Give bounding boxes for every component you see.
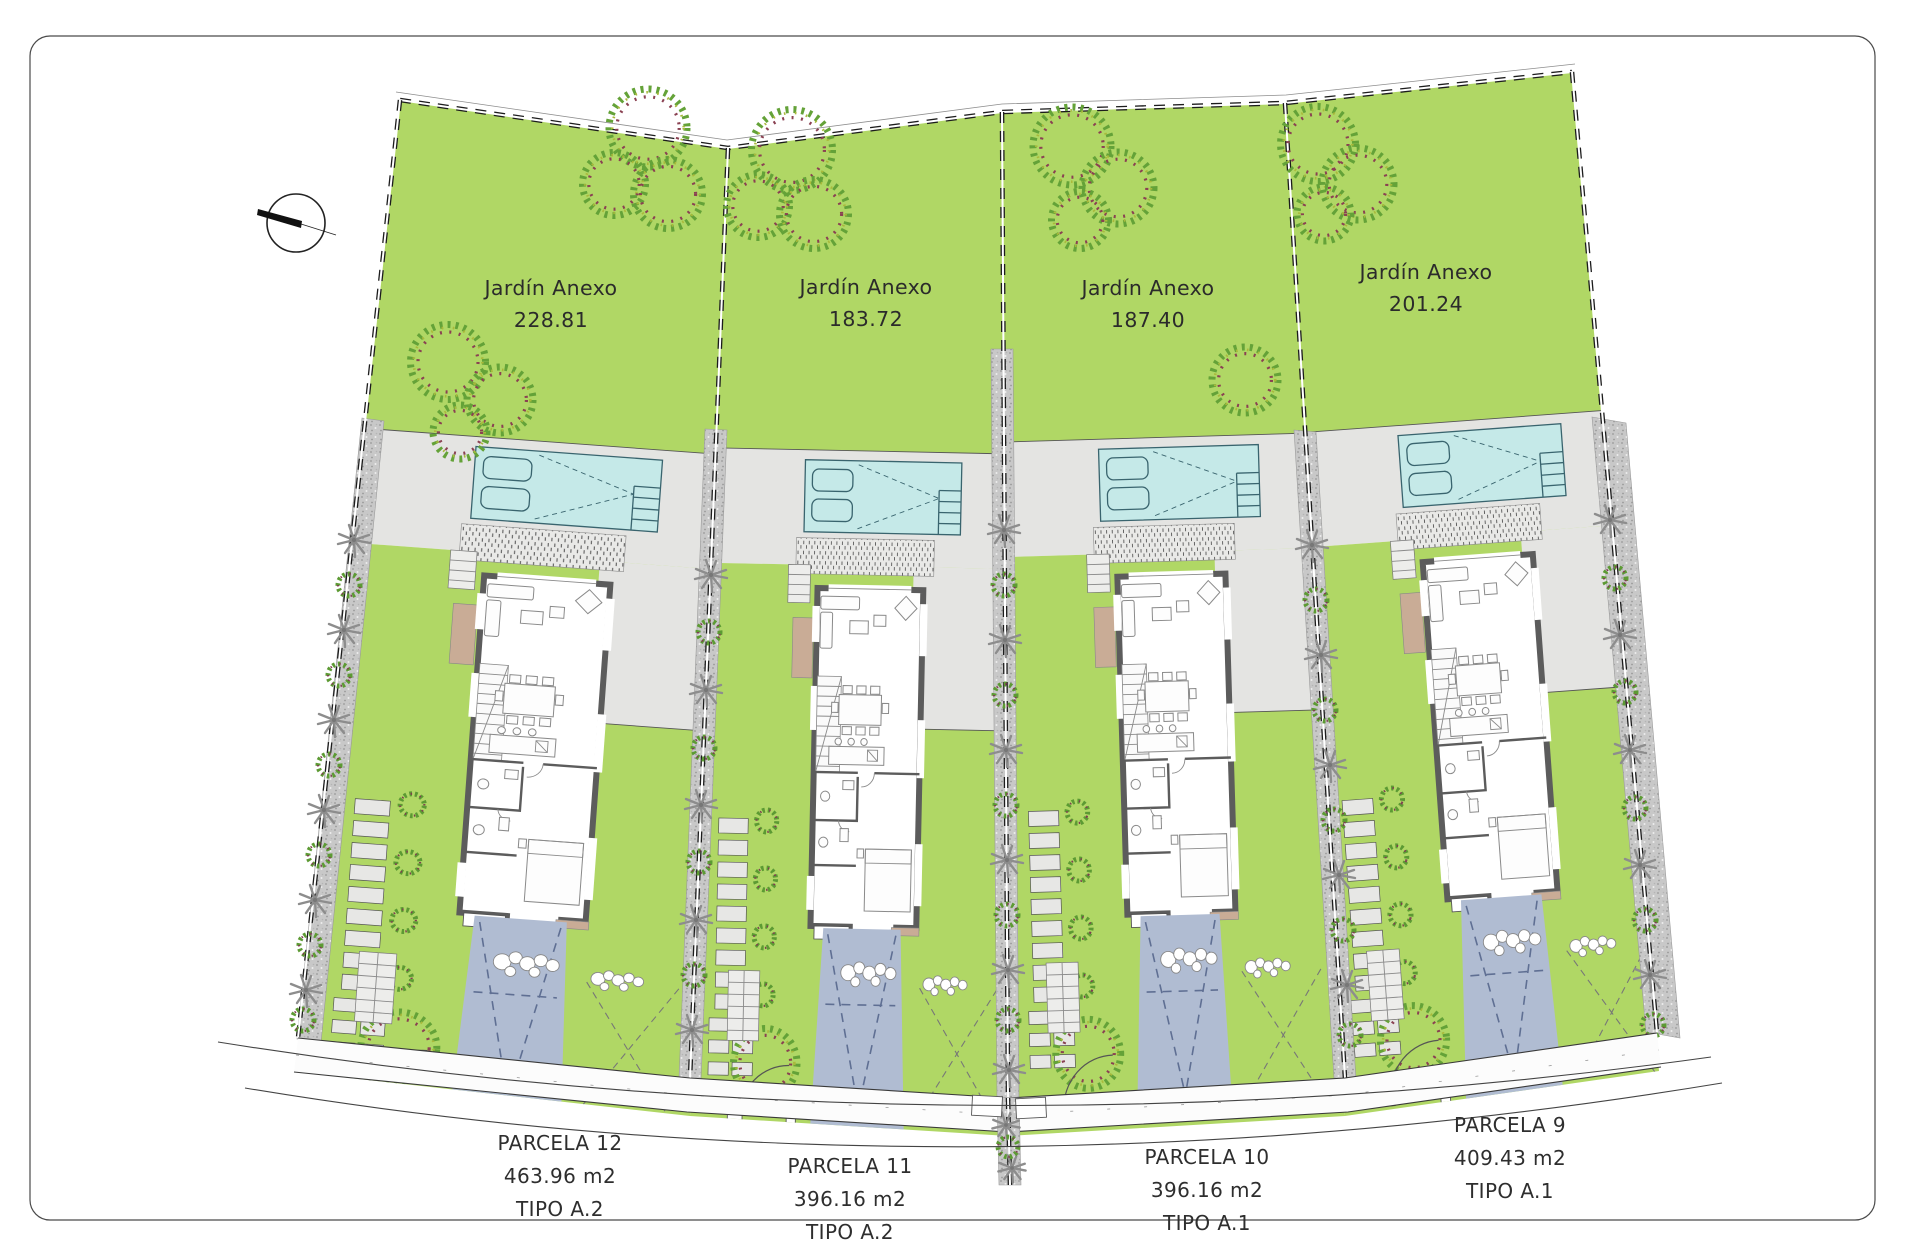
parcel-10-tipo: TIPO A.1 [1162, 1211, 1251, 1235]
parcel-9-tipo: TIPO A.1 [1465, 1179, 1554, 1203]
garden-area-9: 201.24 [1389, 292, 1463, 316]
garden-area-10: 187.40 [1111, 308, 1185, 332]
garden-label-11: Jardín Anexo [797, 275, 932, 299]
site-plan-drawing: Jardín Anexo 228.81 Jardín Anexo 183.72 … [0, 0, 1920, 1242]
site-plan-page: Jardín Anexo 228.81 Jardín Anexo 183.72 … [0, 0, 1920, 1242]
garden-area-12: 228.81 [514, 308, 588, 332]
north-arrow [257, 194, 336, 252]
garden-area-11: 183.72 [829, 307, 903, 331]
garden-label-9: Jardín Anexo [1357, 260, 1492, 284]
parcel-11-tipo: TIPO A.2 [805, 1220, 894, 1242]
parcel-9-area: 409.43 m2 [1454, 1146, 1566, 1170]
parcel-10-name: PARCELA 10 [1144, 1145, 1269, 1169]
parcel-12-name: PARCELA 12 [497, 1131, 622, 1155]
parcel-9-name: PARCELA 9 [1454, 1113, 1566, 1137]
parcel-12-tipo: TIPO A.2 [515, 1197, 604, 1221]
parcel-12-area: 463.96 m2 [504, 1164, 616, 1188]
entry-pillar [1015, 1097, 1046, 1119]
parcel-10-area: 396.16 m2 [1151, 1178, 1263, 1202]
parcel-11-name: PARCELA 11 [787, 1154, 912, 1178]
central-entry-path [971, 1095, 1046, 1185]
garden-label-10: Jardín Anexo [1079, 276, 1214, 300]
garden-label-12: Jardín Anexo [482, 276, 617, 300]
parcel-11-area: 396.16 m2 [794, 1187, 906, 1211]
